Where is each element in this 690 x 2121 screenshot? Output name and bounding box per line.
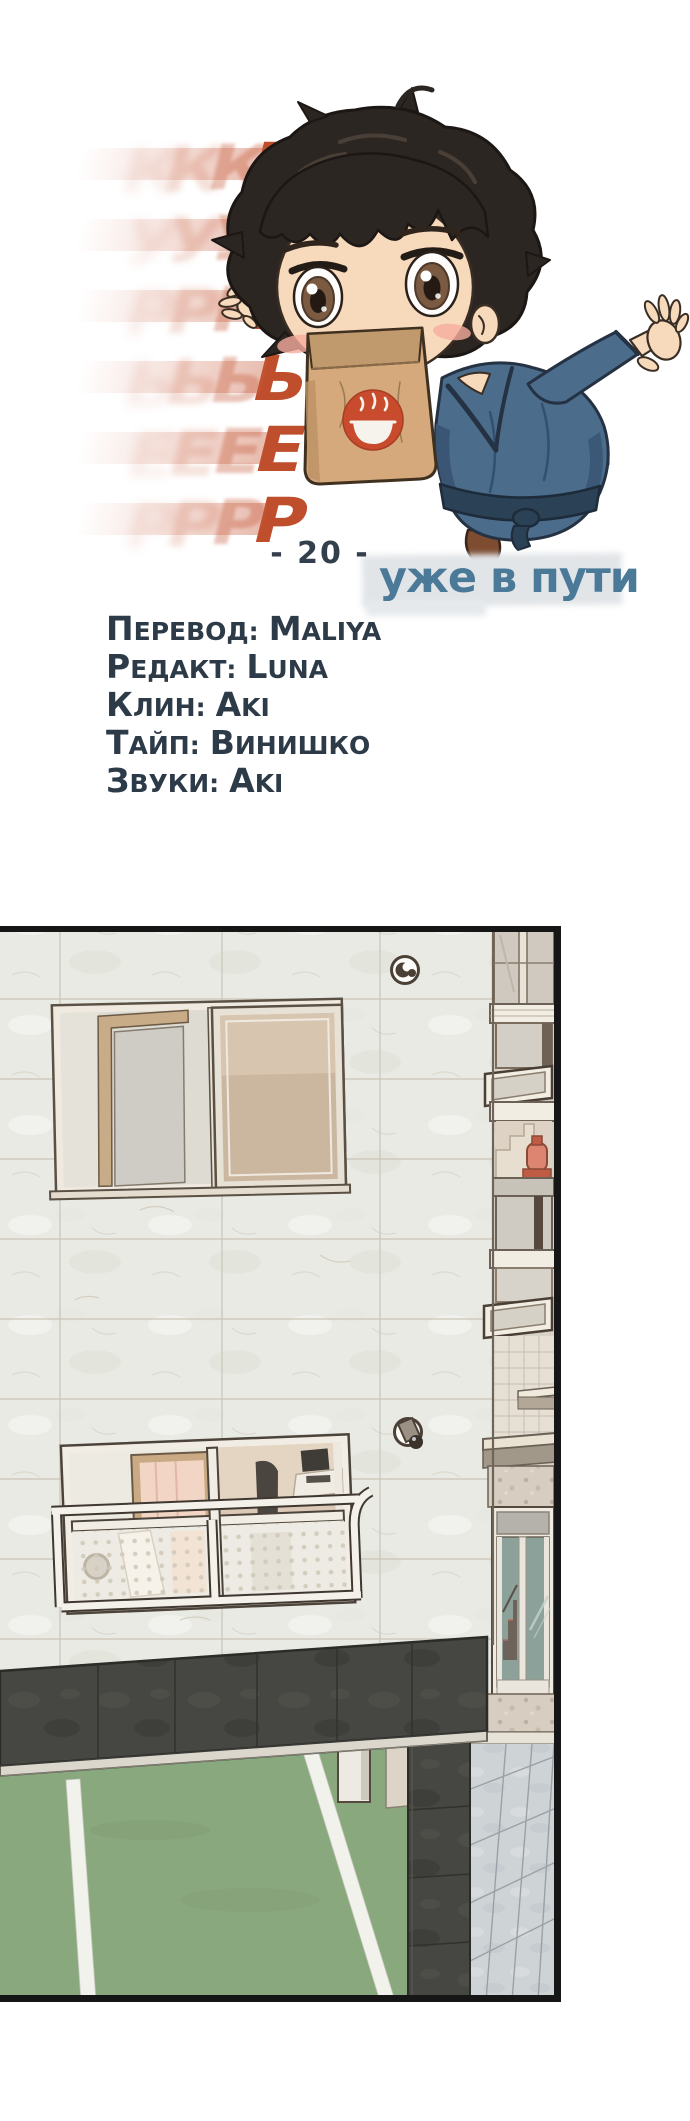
credit-line: Клин:Aki [106,687,381,725]
credit-line: Тайп:Винишко [106,725,381,763]
credit-name: Aki [216,687,270,725]
credit-line: Звуки:Aki [106,763,381,801]
window-middle [49,1433,375,1614]
white-post [338,1748,370,1802]
credit-line: Перевод:Maliya [106,611,381,649]
stair-recess [496,1121,552,1178]
green-parking-area [0,1737,408,2001]
credit-line: Редакт:Luna [106,649,381,687]
window-top [46,999,350,1200]
credit-role: Клин: [106,687,206,725]
entrance-glass-door [492,1507,554,1698]
strip-window [496,1196,552,1250]
chibi-courier-illustration [190,82,690,582]
credit-name: Maliya [269,611,381,649]
interior-door [111,1026,187,1186]
ramen-bowl-icon [343,390,403,450]
canopy-pillar [408,1730,470,2001]
strip-shelf [493,1178,554,1196]
strip-ledge [490,1250,556,1268]
keyboard [306,1475,330,1483]
granite-band [488,1466,554,1507]
manga-panel-building [0,926,561,2002]
paper-bag [305,328,436,484]
subtitle: уже в пути [379,553,639,603]
credit-role: Тайп: [106,725,200,763]
pavement-tiles [468,1744,556,2001]
strip-window [496,1268,552,1302]
window-sash [212,1005,346,1190]
credit-name: Luna [246,649,328,687]
monitor [301,1448,330,1471]
strip-ledge [490,1102,556,1121]
manga-title-page: К У Р Ь Е Р [0,0,690,2121]
strip-ledge [490,1004,556,1023]
office-chair [256,1460,280,1520]
right-arm [528,294,690,403]
credit-role: Редакт: [106,649,236,687]
wall-vent-top [392,957,419,984]
credit-role: Звуки: [106,763,219,801]
credits-block: Перевод:Maliya Редакт:Luna Клин:Aki Тайп… [106,611,381,801]
credit-role: Перевод: [106,611,259,649]
credit-name: Винишко [210,725,371,763]
small-tiles [494,1336,556,1437]
ear [471,305,499,343]
strip-window-top [494,928,554,1004]
credit-name: Aki [229,763,283,801]
